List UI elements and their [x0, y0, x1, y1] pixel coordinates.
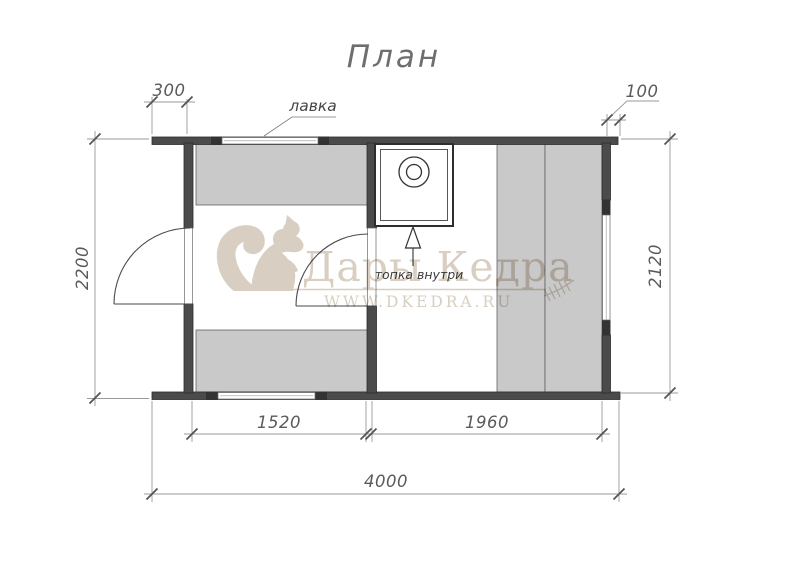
bench-left-room-top [196, 144, 368, 205]
wall-left-upper [184, 143, 193, 228]
dim-value-1520: 1520 [257, 413, 301, 432]
dim-lines-2200 [87, 131, 149, 406]
dim-value-2120: 2120 [646, 244, 665, 288]
bench-strip-top-block-left [211, 137, 222, 146]
wall-partition-lower [367, 306, 377, 393]
floor-plan-page: План [0, 0, 800, 565]
wall-right-upper [602, 143, 611, 200]
bench-strip-bottom-block-left [206, 392, 218, 401]
dim-room-widths: 1520 1960 [184, 401, 610, 442]
bench-leader-line [264, 117, 336, 136]
dim-value-1960: 1960 [465, 413, 509, 432]
dim-lines-rooms [184, 401, 610, 442]
bench-strip-bottom-block-right [315, 392, 327, 401]
dim-right-depth: 2120 [621, 131, 678, 401]
dim-total-length: 4000 [144, 401, 627, 502]
dim-right-overhang: 100 [601, 82, 659, 136]
page-title: План [347, 39, 441, 75]
dim-value-300: 300 [153, 81, 186, 100]
door-opening-left-wall [185, 228, 193, 304]
dim-value-2200: 2200 [73, 246, 92, 290]
stove-chimney-inner [407, 165, 422, 180]
dim-value-4000: 4000 [364, 472, 408, 491]
dim-left-depth: 2200 [73, 131, 149, 406]
window-sill-bottom [602, 320, 611, 335]
floor-plan-drawing: План [0, 0, 800, 565]
bench-strip-top-block-right [318, 137, 329, 146]
bench-left-room-bottom [196, 330, 368, 392]
dim-left-overhang: 300 [144, 81, 195, 134]
window-sill-top [602, 200, 611, 215]
wall-right-lower [602, 335, 611, 393]
watermark-site: WWW.DKEDRA.RU [324, 293, 513, 311]
bench-label: лавка [288, 97, 336, 115]
door-swing-exterior [114, 228, 190, 304]
dim-value-100: 100 [626, 82, 659, 101]
watermark-brand: Дары Кедра [302, 243, 574, 291]
squirrel-logo-icon [217, 215, 304, 291]
wall-left-lower [184, 304, 193, 393]
bench-callout: лавка [264, 97, 337, 136]
